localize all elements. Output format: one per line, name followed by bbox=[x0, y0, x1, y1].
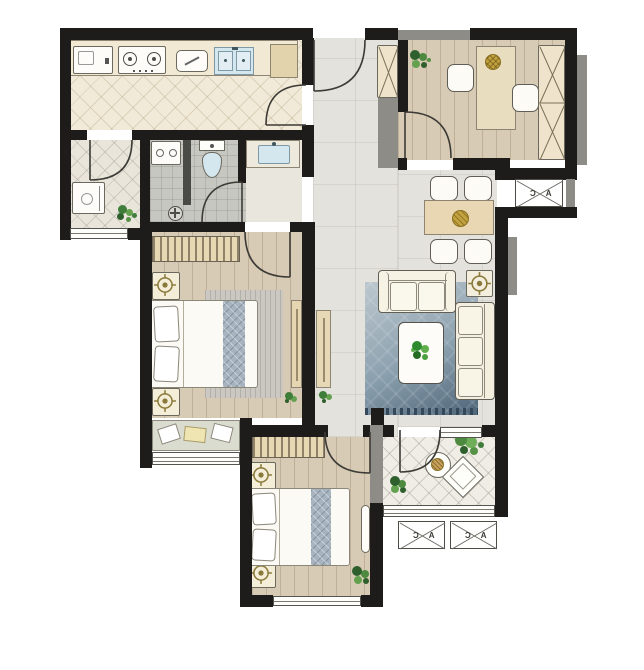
wall-utility-corner bbox=[60, 228, 70, 240]
window-bay bbox=[152, 452, 240, 465]
study-chair bbox=[512, 84, 539, 112]
desk-ornament bbox=[485, 54, 501, 70]
master-bed bbox=[150, 300, 258, 388]
plant bbox=[352, 566, 362, 576]
washing-machine bbox=[72, 182, 105, 214]
wall-master-top-left bbox=[140, 222, 245, 232]
table-lamp-symbol bbox=[467, 271, 492, 296]
window-balcony-rail bbox=[383, 505, 495, 517]
wall-entry-pillar bbox=[365, 28, 398, 40]
table-lamp-symbol bbox=[153, 389, 177, 413]
plant bbox=[118, 205, 127, 214]
plant bbox=[285, 392, 293, 400]
pillow bbox=[153, 345, 180, 382]
ac-label: A C bbox=[461, 531, 486, 540]
pillow bbox=[210, 423, 233, 443]
plant bbox=[412, 341, 422, 351]
wall-living-right bbox=[495, 218, 508, 427]
pillow bbox=[251, 492, 277, 525]
dining-table bbox=[424, 200, 494, 235]
ac-unit-lower-left: A C bbox=[398, 521, 445, 549]
wall-master-left bbox=[140, 232, 152, 418]
kitchen-cabinet bbox=[270, 44, 298, 78]
nightstand bbox=[248, 462, 276, 490]
ac-label: A C bbox=[409, 531, 434, 540]
ac-unit-upper: A C bbox=[515, 179, 563, 207]
ac-label: A C bbox=[526, 189, 551, 198]
chaise-sofa bbox=[455, 302, 495, 400]
sofa bbox=[378, 270, 456, 313]
coffee-table bbox=[398, 322, 444, 384]
vanity-counter bbox=[246, 140, 300, 168]
bay-window-seat bbox=[152, 420, 240, 451]
knife-icon bbox=[184, 56, 199, 65]
wall-top-kitchen bbox=[60, 28, 313, 40]
wall-exterior-right-study bbox=[577, 55, 587, 165]
pillow bbox=[251, 528, 277, 561]
master-tv-cabinet bbox=[291, 300, 302, 388]
wall-ac-niche-gray bbox=[566, 179, 575, 207]
standing-mirror bbox=[361, 505, 370, 553]
plant bbox=[390, 476, 400, 486]
wall-kitchen-right-upper bbox=[302, 38, 314, 85]
window-balcony-top bbox=[440, 427, 482, 438]
wall-utility-corner bbox=[128, 228, 140, 240]
shoe-cabinet bbox=[377, 45, 398, 98]
study-wardrobe bbox=[538, 45, 565, 160]
wall-bedroom2-left bbox=[240, 425, 252, 607]
ac-unit-lower-right: A C bbox=[450, 521, 497, 549]
wall-hall-study-gray bbox=[378, 98, 398, 168]
study-chair bbox=[447, 64, 474, 92]
faucet-icon bbox=[232, 47, 238, 50]
cutting-board bbox=[176, 50, 208, 72]
window-utility bbox=[70, 228, 128, 239]
wall-kitchen-bottom bbox=[132, 130, 313, 140]
wall-shower-partition bbox=[183, 140, 191, 205]
stove bbox=[118, 46, 166, 74]
side-table bbox=[466, 270, 493, 297]
fridge bbox=[73, 46, 113, 74]
bed-throw bbox=[311, 489, 331, 565]
wall-study-bottom-corner bbox=[398, 158, 407, 170]
kitchen-sink bbox=[214, 47, 254, 75]
wall-balcony-right bbox=[495, 427, 508, 517]
wall-master-top-right bbox=[290, 222, 315, 232]
table-lamp-symbol bbox=[249, 463, 273, 487]
window-bedroom2 bbox=[273, 596, 361, 606]
pillow bbox=[153, 305, 180, 342]
plant bbox=[410, 50, 420, 60]
bedroom2-bed bbox=[248, 488, 350, 566]
fruit-plate bbox=[452, 210, 469, 227]
wall-bedroom2-balcony-gray bbox=[370, 425, 383, 503]
bathroom-washer bbox=[151, 141, 181, 165]
toilet bbox=[199, 140, 225, 180]
bed-throw bbox=[223, 301, 245, 387]
wall-bedroom2-bottom-right bbox=[361, 595, 383, 607]
wall-bedroom2-right bbox=[370, 503, 383, 607]
wall-kitchen-right-lower bbox=[302, 125, 314, 177]
dining-chair bbox=[430, 239, 458, 264]
table-lamp-symbol bbox=[153, 273, 177, 297]
nightstand bbox=[152, 272, 180, 300]
wall-bedroom2-bottom-left bbox=[240, 595, 273, 607]
wall-bedroom2-top bbox=[240, 425, 328, 437]
wall-kitchen-bottom-left bbox=[60, 130, 87, 140]
wall-study-top bbox=[470, 28, 577, 40]
floor-plan: A C A C A C bbox=[0, 0, 644, 670]
hall-console bbox=[316, 310, 331, 388]
wall-study-top-gray bbox=[398, 30, 470, 40]
wall-study-right bbox=[565, 28, 577, 170]
dining-chair bbox=[430, 176, 458, 201]
master-wardrobe bbox=[152, 236, 240, 262]
plant bbox=[319, 391, 327, 399]
floor-drain-icon bbox=[168, 206, 183, 221]
wall-study-left bbox=[398, 40, 408, 112]
nightstand bbox=[152, 388, 180, 416]
dining-chair bbox=[464, 239, 492, 264]
pillow bbox=[157, 423, 181, 444]
wall-master-hall bbox=[302, 232, 315, 425]
dining-chair bbox=[464, 176, 492, 201]
wall-bath-partition bbox=[238, 140, 246, 183]
wall-ac-niche-bottom bbox=[495, 207, 577, 218]
wall-bay-left bbox=[140, 418, 152, 468]
pillow bbox=[183, 426, 206, 443]
wall-exterior-right-living bbox=[508, 237, 517, 295]
